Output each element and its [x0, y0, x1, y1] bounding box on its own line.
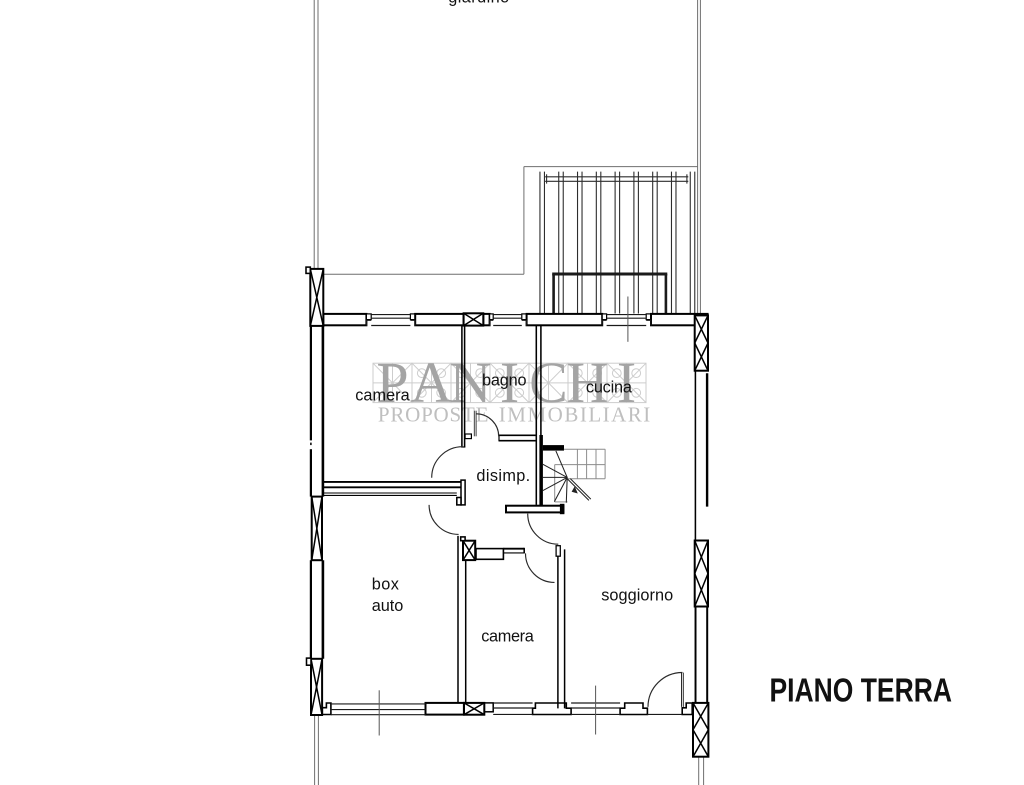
svg-text:giardino: giardino	[448, 0, 509, 7]
svg-text:IMMOBILIARI: IMMOBILIARI	[499, 403, 651, 427]
svg-text:camera: camera	[355, 387, 410, 405]
svg-text:PIANO TERRA: PIANO TERRA	[770, 673, 953, 710]
svg-text:box: box	[372, 576, 399, 594]
svg-text:soggiorno: soggiorno	[601, 587, 673, 605]
svg-text:PROPOSTE: PROPOSTE	[378, 403, 489, 427]
svg-text:bagno: bagno	[482, 371, 527, 389]
svg-text:cucina: cucina	[586, 378, 633, 396]
svg-text:auto: auto	[372, 597, 404, 615]
svg-text:camera: camera	[481, 627, 535, 645]
svg-text:disimp.: disimp.	[476, 467, 530, 485]
